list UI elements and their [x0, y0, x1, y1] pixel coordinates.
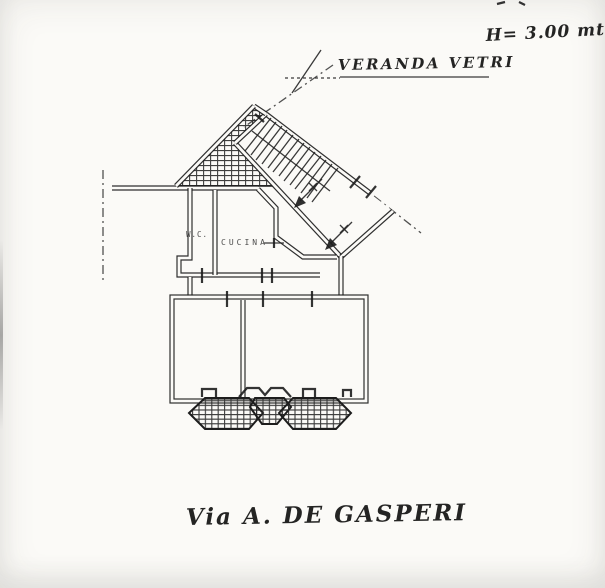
- scanned-floor-plan-page: H= 3.00 mt. VERANDA VETRI Via A. DE GASP…: [0, 0, 605, 588]
- balconies: [189, 398, 351, 429]
- cutoff-pen-marks: [497, 2, 525, 5]
- balcony-right: [279, 398, 351, 429]
- balcony-door-left: [202, 389, 216, 397]
- bedrooms-outer-wall: [172, 297, 366, 401]
- room-labels: W.C. CUCINA: [186, 230, 268, 247]
- wc-label: W.C.: [186, 230, 208, 239]
- height-note: H= 3.00 mt.: [484, 19, 605, 46]
- floor-plan-drawing: H= 3.00 mt. VERANDA VETRI Via A. DE GASP…: [0, 0, 605, 588]
- balcony-door-right: [303, 389, 315, 397]
- street-label: Via A. DE GASPERI: [186, 499, 468, 531]
- leader-slash-line: [292, 50, 321, 93]
- small-notch-right: [343, 390, 351, 397]
- veranda-label: VERANDA VETRI: [338, 53, 515, 74]
- center-notches: [239, 388, 291, 397]
- kitchen-label: CUCINA: [221, 238, 268, 247]
